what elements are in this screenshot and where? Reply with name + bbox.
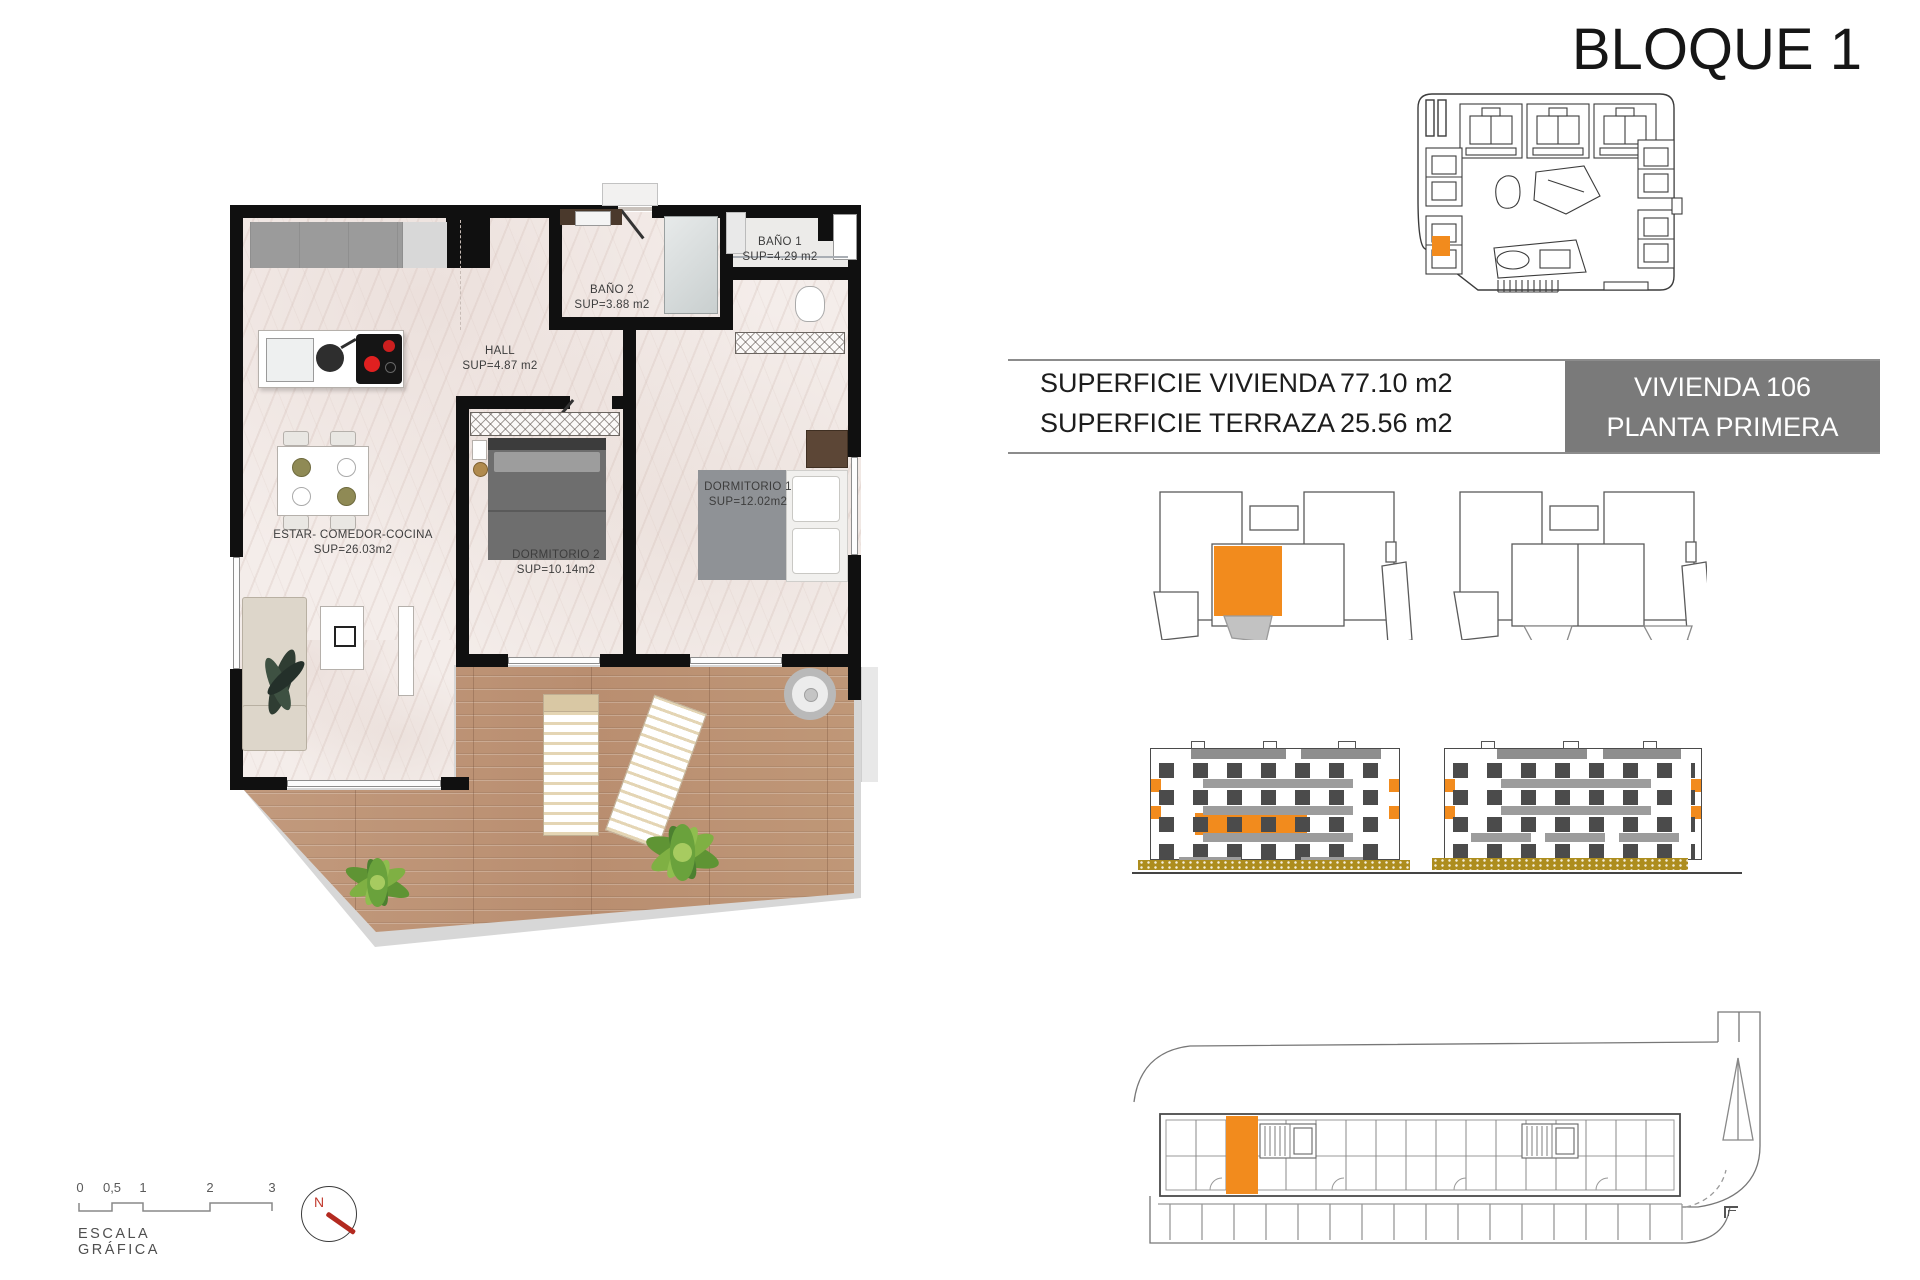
wardrobe <box>470 412 620 436</box>
place-setting <box>292 458 311 477</box>
scale-tick: 3 <box>268 1180 275 1195</box>
wall <box>441 777 469 790</box>
scale-tick: 0,5 <box>103 1180 121 1195</box>
info-table: SUPERFICIE VIVIENDA 77.10 m2 SUPERFICIE … <box>1008 356 1880 456</box>
elevation-left-building <box>1150 748 1400 860</box>
induction-hob <box>356 334 402 384</box>
toilet <box>795 286 825 322</box>
tv-console <box>398 606 414 696</box>
site-key-plan <box>1398 80 1703 325</box>
room-label-dormitorio2: DORMITORIO 2SUP=10.14m2 <box>512 548 600 578</box>
page-title: BLOQUE 1 <box>1490 16 1862 83</box>
wall <box>456 396 570 409</box>
apartment-floor-plan: ESTAR- COMEDOR-COCINASUP=26.03m2 DORMITO… <box>0 0 960 1000</box>
sliding-door <box>508 657 600 664</box>
unit-info-box: VIVIENDA 106 PLANTA PRIMERA <box>1565 361 1880 452</box>
place-setting <box>292 487 311 506</box>
hob-burner-red-2 <box>383 340 395 352</box>
north-label: N <box>314 1194 324 1210</box>
entry-porch <box>602 183 658 206</box>
bed-headboard <box>488 438 606 450</box>
bath1-sink <box>833 214 857 260</box>
superficie-vivienda-label: SUPERFICIE VIVIENDA <box>1040 368 1336 399</box>
bath2-shower <box>664 216 718 314</box>
bath2-sink <box>575 211 611 226</box>
place-setting <box>337 458 356 477</box>
dining-chair <box>283 431 309 446</box>
dining-chair <box>330 431 356 446</box>
floor-key-plans <box>1142 478 1707 640</box>
wall <box>848 555 861 667</box>
neighbor-strip <box>861 667 878 782</box>
room-label-bano2: BAÑO 2SUP=3.88 m2 <box>574 283 649 313</box>
bed-fold-line <box>488 510 606 512</box>
wall <box>230 205 243 557</box>
round-planter-center <box>804 688 818 702</box>
wall <box>549 317 733 330</box>
plan-sheet: BLOQUE 1 <box>0 0 1920 1280</box>
wardrobe <box>735 332 845 354</box>
wall <box>733 267 861 280</box>
wall <box>600 654 690 667</box>
superficie-vivienda-value: 77.10 m2 <box>1340 368 1453 399</box>
elevation-right-building <box>1444 748 1702 860</box>
terrace-plant <box>625 805 740 900</box>
bed-pillow <box>792 476 840 522</box>
coffee-table-tray <box>334 626 356 647</box>
scale-tick: 2 <box>206 1180 213 1195</box>
wall <box>623 330 636 667</box>
lounger-headrest <box>543 694 599 712</box>
wall <box>230 777 287 790</box>
wall <box>446 207 490 268</box>
sun-lounger <box>543 694 599 836</box>
superficie-terraza-value: 25.56 m2 <box>1340 408 1453 439</box>
corner-mark-icon <box>1724 1206 1738 1218</box>
bed-pillow <box>792 528 840 574</box>
highlighted-storage-unit <box>1226 1116 1258 1194</box>
nightstand <box>472 440 487 460</box>
room-label-estar: ESTAR- COMEDOR-COCINASUP=26.03m2 <box>273 528 432 558</box>
ground-strip <box>1138 860 1410 870</box>
scale-label: ESCALA GRÁFICA <box>78 1226 160 1258</box>
bed-pillows <box>494 452 600 472</box>
sliding-door <box>690 657 782 664</box>
unit-number: VIVIENDA 106 <box>1565 372 1880 403</box>
closet-brown <box>806 430 848 468</box>
room-label-hall: HALLSUP=4.87 m2 <box>462 344 537 374</box>
room-label-bano1: BAÑO 1SUP=4.29 m2 <box>742 235 817 265</box>
table-lamp <box>473 462 488 477</box>
garage-level-plan <box>1126 1000 1781 1250</box>
highlighted-unit-plan <box>1214 546 1282 616</box>
highlighted-unit-site <box>1432 236 1450 256</box>
island-sink <box>266 338 314 382</box>
sliding-door <box>287 780 441 787</box>
superficie-terraza-label: SUPERFICIE TERRAZA <box>1040 408 1335 439</box>
place-setting <box>337 487 356 506</box>
room-label-dormitorio1: DORMITORIO 1SUP=12.02m2 <box>704 480 792 510</box>
unit-floor: PLANTA PRIMERA <box>1565 412 1880 443</box>
dark-plant <box>252 638 310 726</box>
dining-table <box>277 446 369 516</box>
scale-bar <box>78 1198 276 1218</box>
window <box>233 557 240 669</box>
wall <box>848 654 861 700</box>
window <box>851 457 858 555</box>
kitchen-counter-end <box>402 222 447 268</box>
hob-burner-off <box>385 362 396 373</box>
terrace-plant <box>330 840 425 925</box>
ground-line <box>1132 872 1742 874</box>
kitchen-zone-dashed-line <box>460 220 461 330</box>
wall <box>456 396 469 667</box>
cooking-pan <box>316 344 344 372</box>
table-bottom-border <box>1008 452 1880 454</box>
building-elevations <box>1132 742 1742 900</box>
hob-burner-red-1 <box>364 356 380 372</box>
scale-tick: 1 <box>139 1180 146 1195</box>
ground-strip <box>1432 858 1688 870</box>
scale-tick: 0 <box>76 1180 83 1195</box>
